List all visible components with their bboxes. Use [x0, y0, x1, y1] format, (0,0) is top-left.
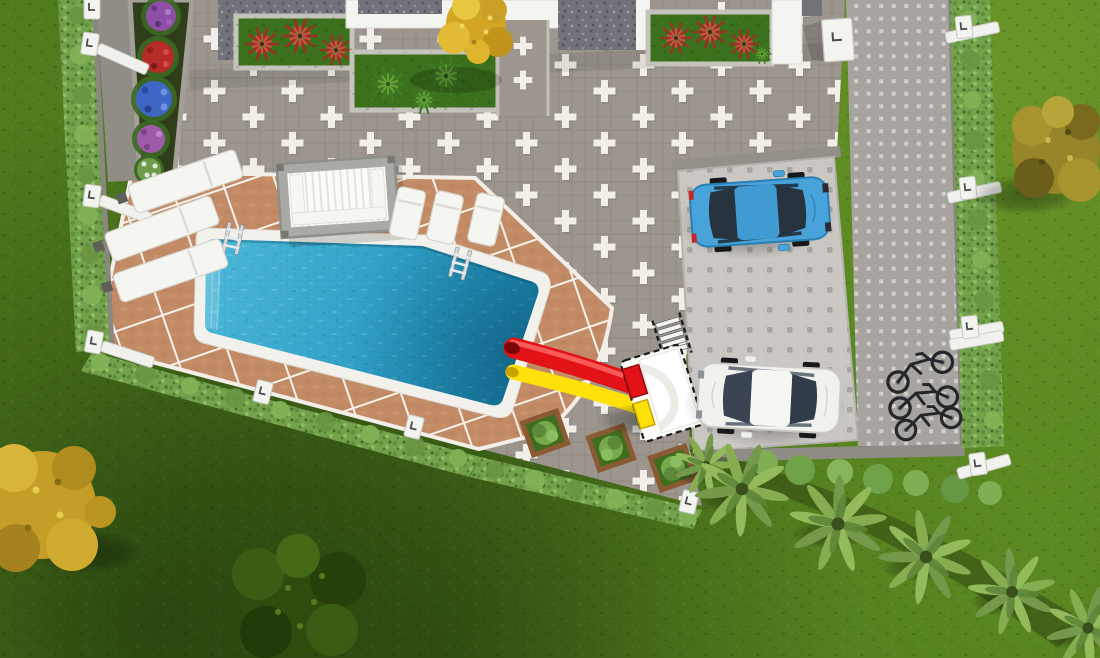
driveway-dots: [846, 0, 964, 446]
fence-post: [83, 184, 102, 208]
pergola-post: [387, 156, 394, 163]
pergola-post: [281, 231, 288, 238]
car-rear-window: [790, 374, 819, 425]
fence-post: [969, 452, 988, 476]
car-mirror: [745, 356, 756, 363]
car-mirror: [778, 244, 789, 251]
fence-post: [961, 315, 979, 339]
fence-post: [955, 15, 973, 39]
car-headlight: [822, 183, 829, 192]
flower-cluster-blue: [131, 76, 177, 122]
fence-post: [84, 0, 100, 19]
car-headlight: [698, 370, 704, 378]
flower-bed: [96, 0, 192, 185]
pergola: [277, 155, 408, 248]
car-windshield: [722, 369, 753, 424]
car-taillight: [688, 191, 694, 200]
fence-post: [81, 32, 100, 56]
roof-corner: [802, 0, 822, 16]
fence-post: [84, 330, 104, 354]
car-roof: [750, 369, 793, 427]
car-headlight: [825, 222, 832, 231]
wall-right: [772, 0, 802, 64]
scene-canvas: [0, 0, 1100, 658]
roof-inset-gravel: [358, 0, 442, 14]
car-roof: [734, 184, 780, 241]
car-headlight: [696, 410, 702, 418]
car-mirror: [741, 432, 752, 439]
pergola-post: [277, 164, 284, 171]
aerial-render: [0, 0, 1100, 658]
roof-right-gravel: [558, 0, 638, 50]
car-taillight: [691, 233, 697, 242]
flower-cluster-pink: [132, 120, 170, 158]
car-mirror: [773, 170, 784, 177]
